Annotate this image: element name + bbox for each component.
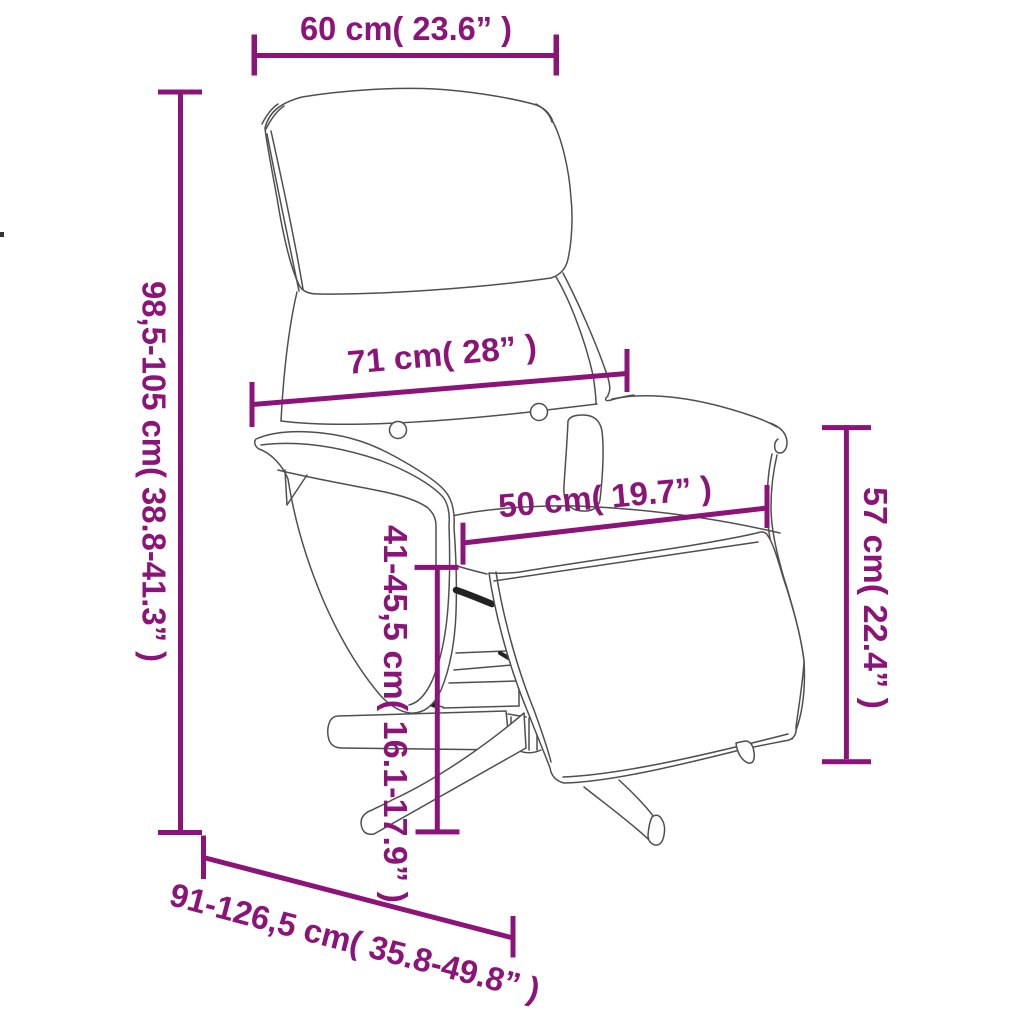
svg-text:60 cm( 23.6” ): 60 cm( 23.6” )	[300, 10, 512, 47]
svg-text:98,5-105 cm( 38.8-41.3” ): 98,5-105 cm( 38.8-41.3” )	[136, 281, 173, 662]
svg-text:57 cm( 22.4” ): 57 cm( 22.4” )	[857, 487, 894, 709]
svg-text:41-45,5 cm( 16.1-17.9” ): 41-45,5 cm( 16.1-17.9” )	[377, 525, 414, 903]
